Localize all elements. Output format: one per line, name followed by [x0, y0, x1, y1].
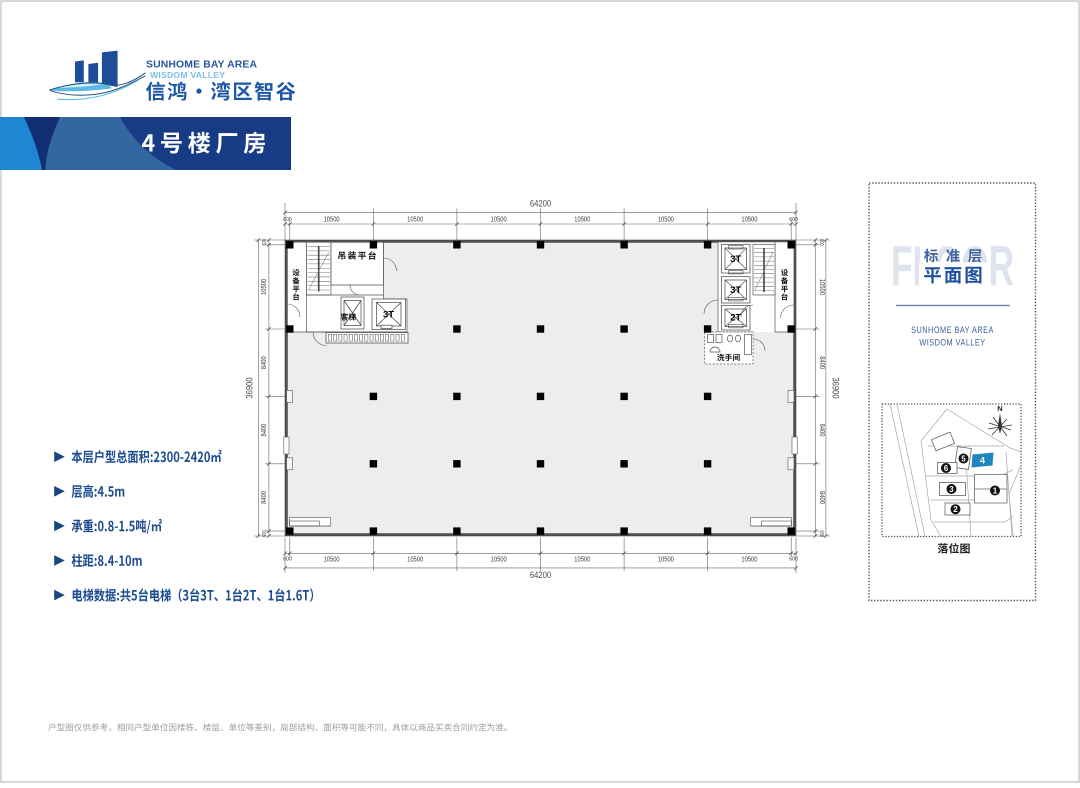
svg-text:8400: 8400 — [260, 491, 268, 504]
svg-text:4: 4 — [980, 456, 985, 466]
svg-text:WISDOM VALLEY: WISDOM VALLEY — [150, 70, 225, 80]
svg-text:10500: 10500 — [324, 216, 340, 224]
svg-text:1: 1 — [993, 486, 998, 495]
svg-text:10500: 10500 — [574, 216, 590, 224]
svg-text:600: 600 — [789, 557, 798, 563]
svg-text:600: 600 — [819, 239, 825, 246]
svg-text:10500: 10500 — [658, 556, 674, 564]
svg-text:8400: 8400 — [818, 356, 826, 369]
svg-text:600: 600 — [283, 217, 292, 223]
svg-text:10500: 10500 — [658, 216, 674, 224]
svg-text:8400: 8400 — [818, 491, 826, 504]
svg-text:WISDOM VALLEY: WISDOM VALLEY — [919, 338, 985, 348]
svg-text:10500: 10500 — [818, 279, 826, 295]
svg-text:600: 600 — [789, 217, 798, 223]
svg-text:10500: 10500 — [407, 556, 423, 564]
svg-text:5: 5 — [961, 454, 966, 463]
svg-text:600: 600 — [261, 239, 267, 246]
svg-text:10500: 10500 — [741, 216, 757, 224]
svg-text:64200: 64200 — [530, 198, 551, 209]
svg-text:10500: 10500 — [407, 216, 423, 224]
svg-text:3T: 3T — [730, 285, 741, 296]
svg-text:8400: 8400 — [260, 356, 268, 369]
svg-text:N: N — [997, 404, 1002, 413]
svg-text:64200: 64200 — [530, 569, 551, 580]
svg-text:10500: 10500 — [491, 556, 507, 564]
svg-text:8400: 8400 — [818, 424, 826, 437]
svg-text:6: 6 — [944, 464, 949, 473]
svg-text:36900: 36900 — [244, 377, 255, 398]
svg-text:SUNHOME BAY AREA: SUNHOME BAY AREA — [146, 59, 257, 70]
svg-text:10500: 10500 — [260, 279, 268, 295]
svg-text:10500: 10500 — [324, 556, 340, 564]
svg-text:3: 3 — [949, 485, 954, 494]
svg-text:600: 600 — [283, 557, 292, 563]
svg-text:8400: 8400 — [260, 423, 268, 436]
svg-text:600: 600 — [819, 530, 825, 537]
svg-text:2T: 2T — [730, 313, 741, 324]
svg-text:SUNHOME BAY AREA: SUNHOME BAY AREA — [911, 325, 994, 335]
svg-text:2: 2 — [953, 505, 958, 514]
svg-text:3T: 3T — [730, 254, 741, 265]
svg-text:36900: 36900 — [830, 377, 841, 398]
svg-text:10500: 10500 — [741, 556, 757, 564]
svg-text:10500: 10500 — [491, 216, 507, 224]
svg-text:3T: 3T — [383, 310, 394, 321]
svg-text:10500: 10500 — [574, 556, 590, 564]
svg-text:600: 600 — [261, 530, 267, 537]
